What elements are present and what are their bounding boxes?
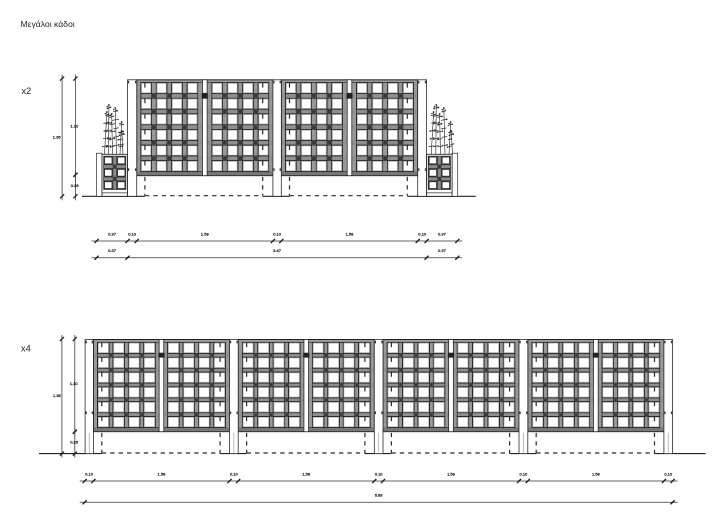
svg-text:0.37: 0.37 <box>438 248 447 253</box>
svg-text:0.37: 0.37 <box>438 231 447 236</box>
svg-text:1.58: 1.58 <box>346 231 355 236</box>
svg-text:1.58: 1.58 <box>158 471 167 476</box>
svg-text:0.37: 0.37 <box>108 231 117 236</box>
svg-text:0.10: 0.10 <box>520 471 529 476</box>
svg-text:1.58: 1.58 <box>302 471 311 476</box>
svg-text:0.10: 0.10 <box>664 471 673 476</box>
svg-text:6.83: 6.83 <box>375 493 384 498</box>
svg-text:0.26: 0.26 <box>70 440 79 445</box>
svg-text:0.10: 0.10 <box>128 231 137 236</box>
svg-text:3.47: 3.47 <box>273 248 282 253</box>
svg-text:0.10: 0.10 <box>375 471 384 476</box>
svg-text:1.10: 1.10 <box>70 381 79 386</box>
svg-text:1.36: 1.36 <box>53 393 62 398</box>
svg-text:Μεγάλοι κάδοι: Μεγάλοι κάδοι <box>21 19 75 29</box>
svg-text:0.10: 0.10 <box>85 471 94 476</box>
svg-text:1.58: 1.58 <box>592 471 601 476</box>
svg-text:x2: x2 <box>22 86 32 96</box>
svg-text:0.26: 0.26 <box>71 183 80 188</box>
svg-text:0.10: 0.10 <box>273 231 282 236</box>
svg-text:1.10: 1.10 <box>70 124 79 129</box>
svg-text:0.37: 0.37 <box>108 248 117 253</box>
svg-text:0.10: 0.10 <box>230 471 239 476</box>
svg-text:1.58: 1.58 <box>447 471 456 476</box>
svg-text:0.10: 0.10 <box>418 231 427 236</box>
svg-text:1.58: 1.58 <box>201 231 210 236</box>
svg-text:1.36: 1.36 <box>53 135 62 140</box>
svg-text:x4: x4 <box>21 344 31 354</box>
